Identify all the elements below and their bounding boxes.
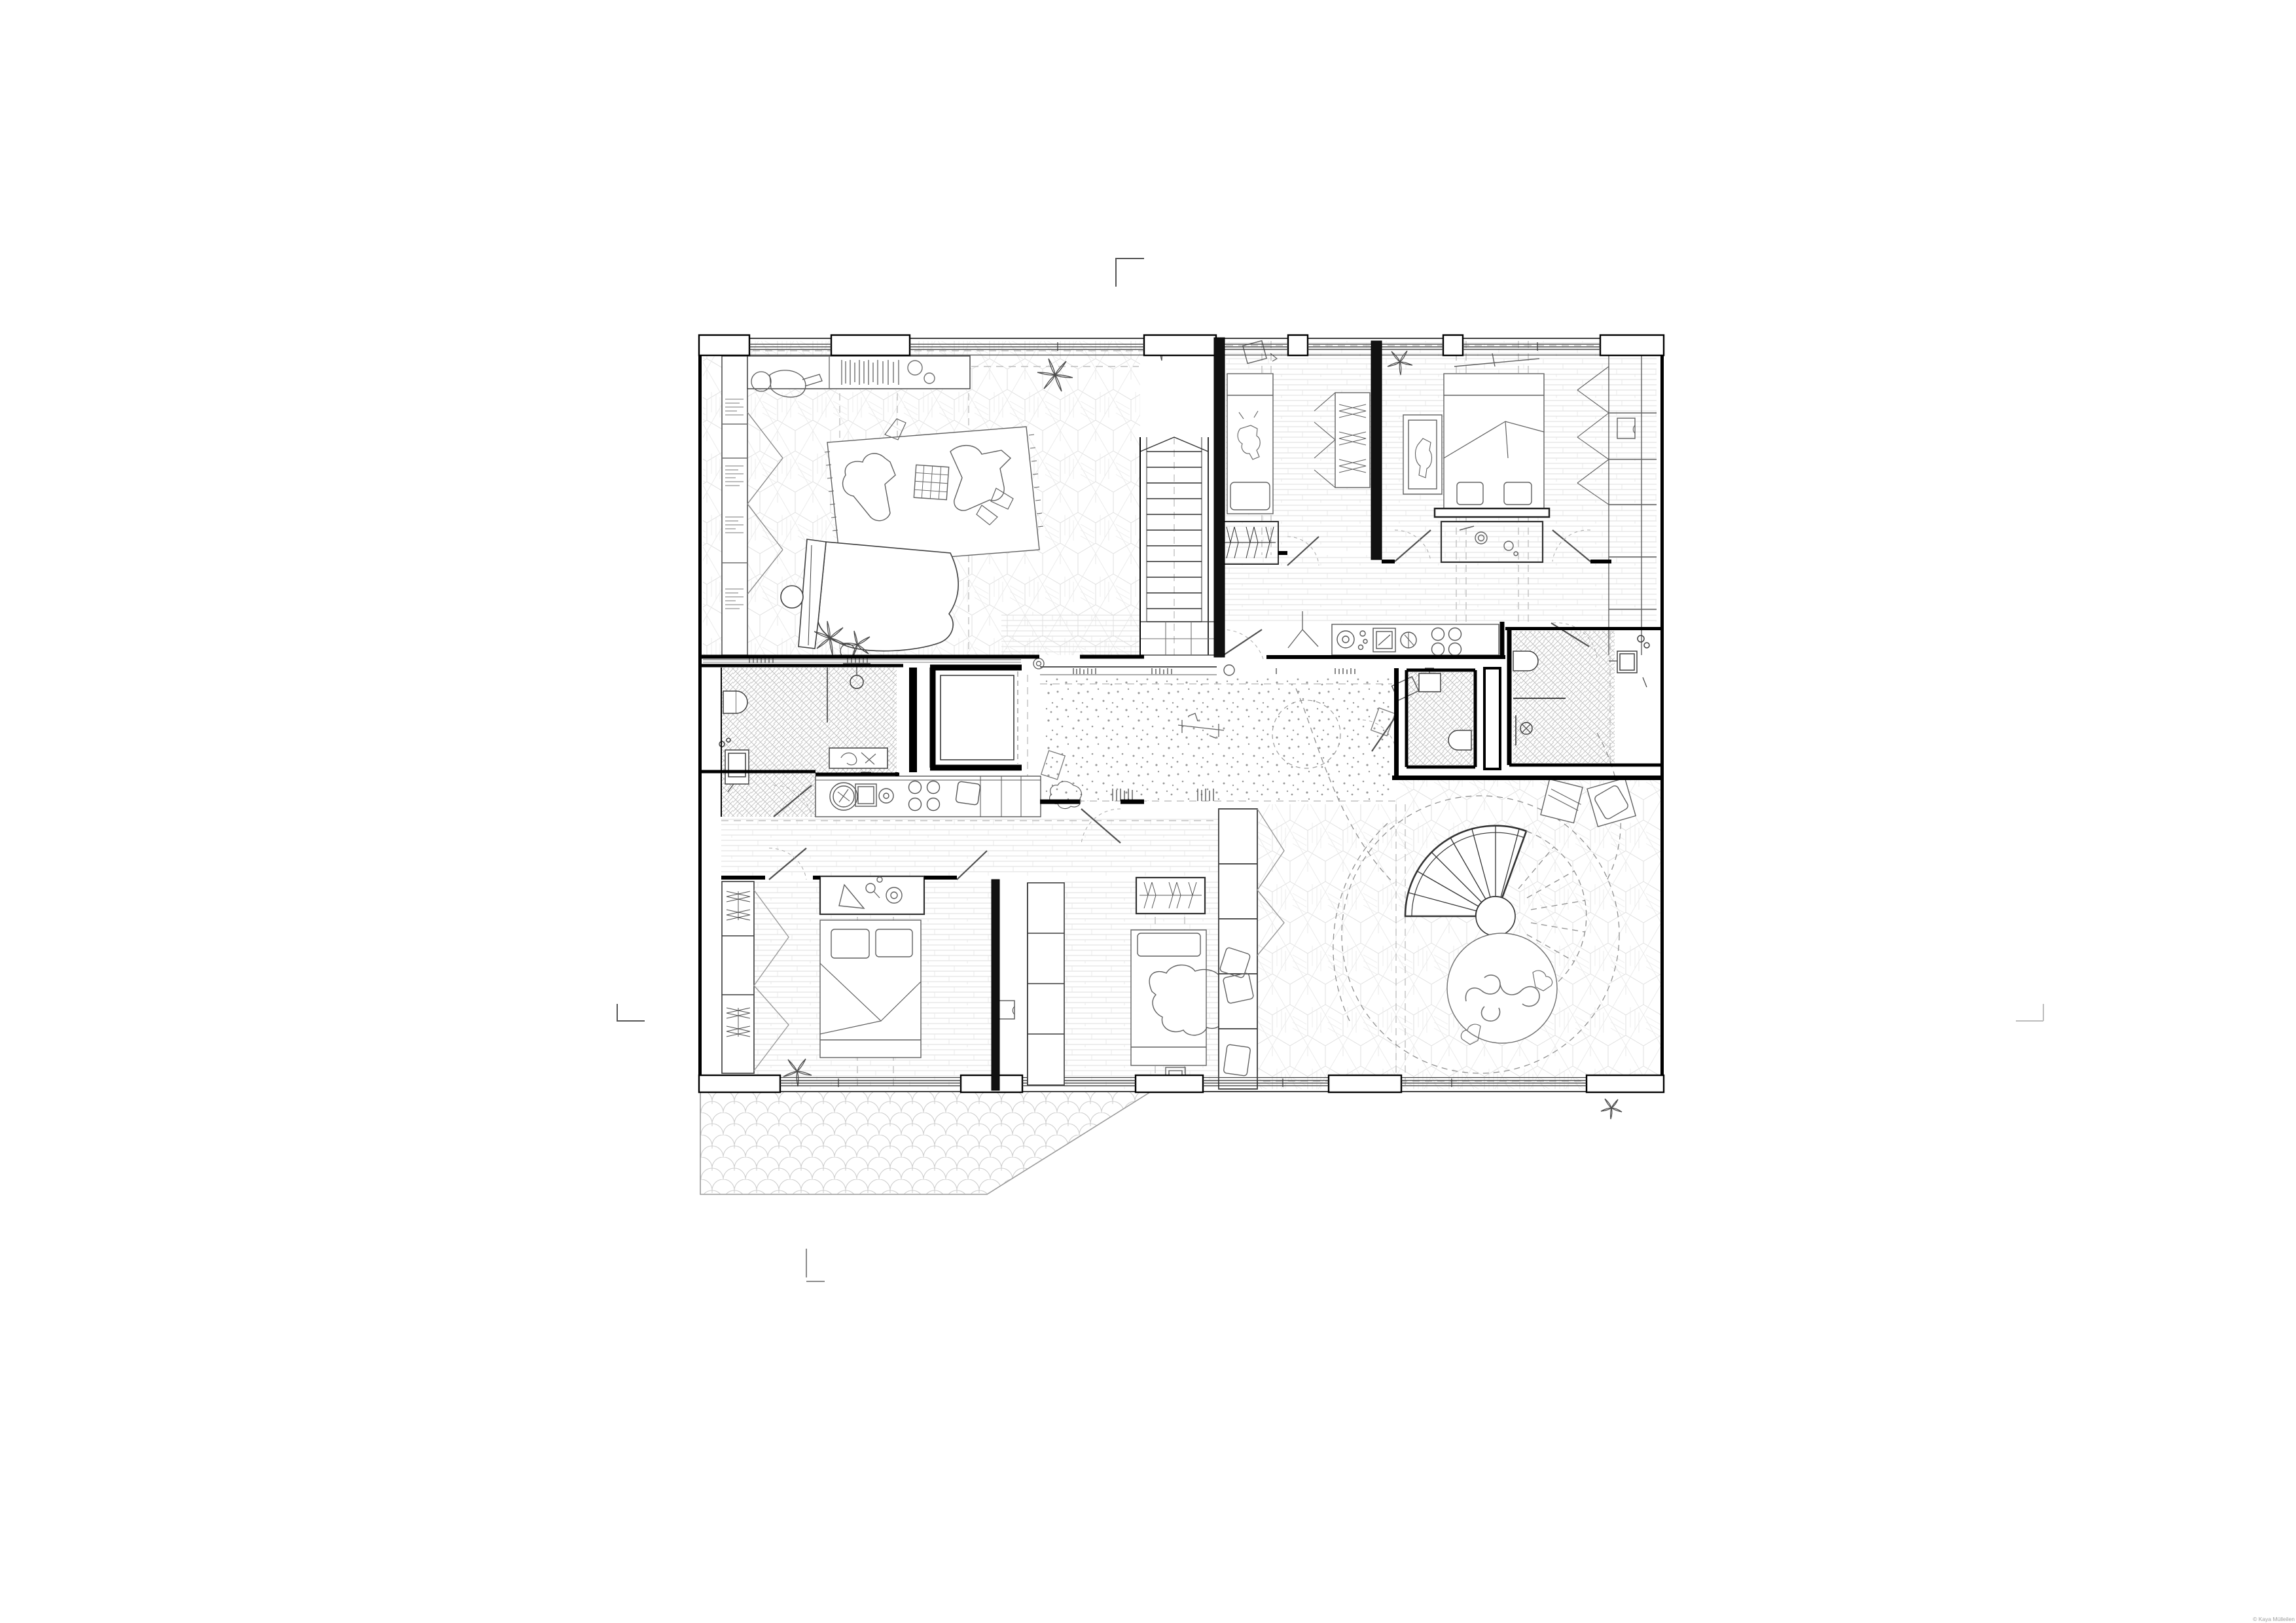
svg-text:© Kaya Mülleilen: © Kaya Mülleilen: [2253, 1616, 2295, 1622]
